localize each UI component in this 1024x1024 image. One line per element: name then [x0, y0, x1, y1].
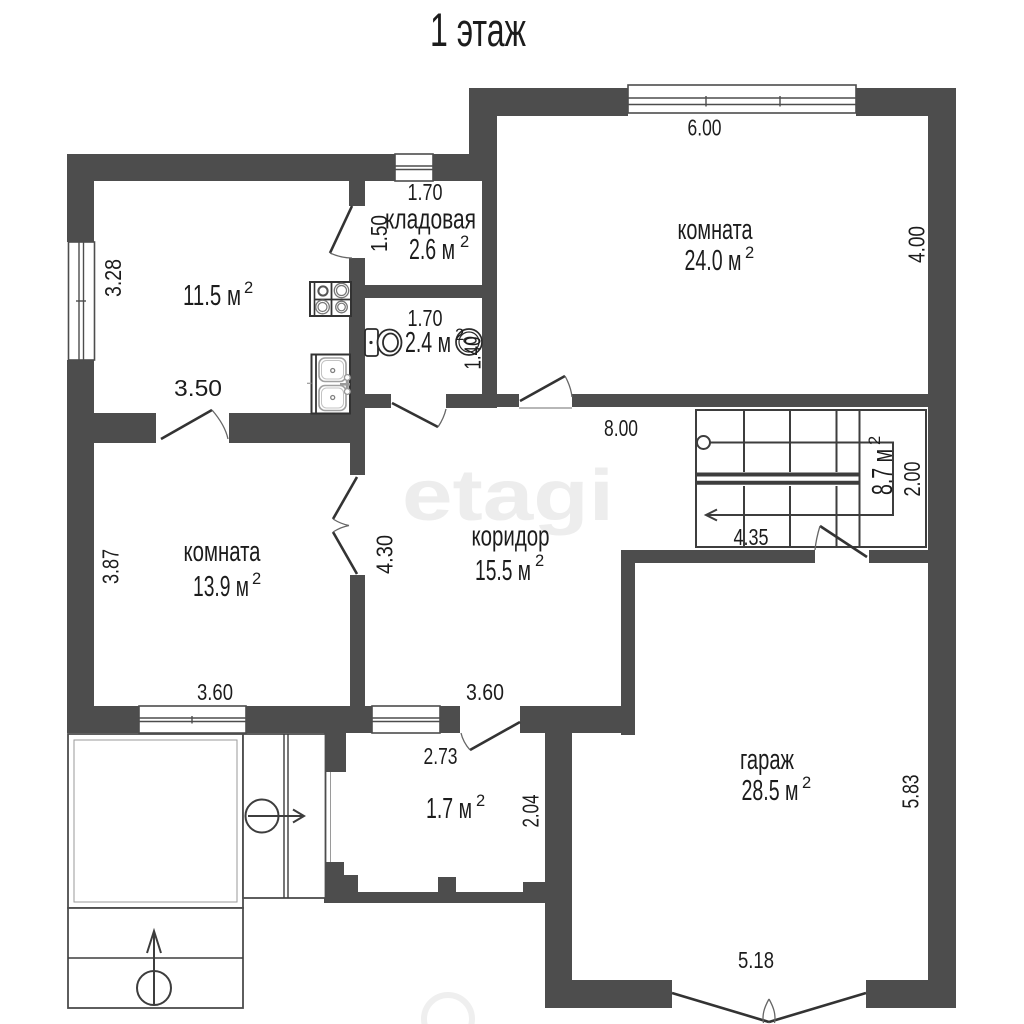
svg-text:28.5 м: 28.5 м: [742, 775, 799, 807]
svg-text:24.0 м: 24.0 м: [685, 245, 742, 277]
svg-text:2: 2: [252, 570, 261, 588]
svg-text:1.7 м: 1.7 м: [426, 793, 472, 825]
svg-text:2: 2: [802, 774, 811, 792]
svg-text:2: 2: [244, 279, 253, 297]
svg-text:2.4 м: 2.4 м: [405, 327, 451, 359]
svg-text:15.5 м: 15.5 м: [475, 555, 531, 587]
svg-text:5.18: 5.18: [738, 947, 774, 973]
svg-text:1.50: 1.50: [366, 215, 392, 252]
svg-text:1 этаж: 1 этаж: [430, 3, 526, 56]
svg-text:2.6 м: 2.6 м: [409, 234, 455, 266]
svg-text:коридор: коридор: [472, 521, 550, 553]
svg-text:8.7 м: 8.7 м: [867, 449, 899, 495]
svg-text:6.00: 6.00: [688, 115, 722, 141]
svg-text:13.9 м: 13.9 м: [193, 571, 249, 603]
svg-text:1.70: 1.70: [408, 305, 443, 331]
svg-text:комната: комната: [184, 536, 262, 568]
svg-text:гараж: гараж: [740, 744, 794, 776]
svg-text:2: 2: [745, 244, 754, 262]
svg-text:4.35: 4.35: [734, 524, 769, 550]
svg-text:11.5 м: 11.5 м: [183, 280, 241, 312]
svg-text:5.83: 5.83: [898, 775, 924, 809]
svg-text:3.50: 3.50: [174, 375, 222, 401]
svg-text:3.28: 3.28: [100, 259, 126, 297]
svg-text:4.00: 4.00: [904, 226, 930, 263]
svg-text:комната: комната: [678, 214, 754, 246]
svg-text:кладовая: кладовая: [385, 204, 476, 236]
svg-text:2.73: 2.73: [424, 743, 458, 769]
svg-text:1.40: 1.40: [460, 337, 486, 370]
svg-text:3.87: 3.87: [98, 549, 124, 584]
svg-text:3.60: 3.60: [466, 679, 504, 705]
svg-text:1.70: 1.70: [408, 179, 443, 205]
svg-text:4.30: 4.30: [372, 535, 398, 574]
svg-text:2: 2: [866, 436, 884, 445]
svg-text:3.60: 3.60: [197, 679, 233, 705]
svg-text:8.00: 8.00: [604, 415, 638, 441]
svg-text:2: 2: [476, 792, 485, 810]
svg-text:2.04: 2.04: [518, 794, 544, 827]
svg-text:2.00: 2.00: [899, 462, 925, 497]
svg-text:2: 2: [460, 233, 469, 251]
svg-text:2: 2: [535, 552, 544, 570]
